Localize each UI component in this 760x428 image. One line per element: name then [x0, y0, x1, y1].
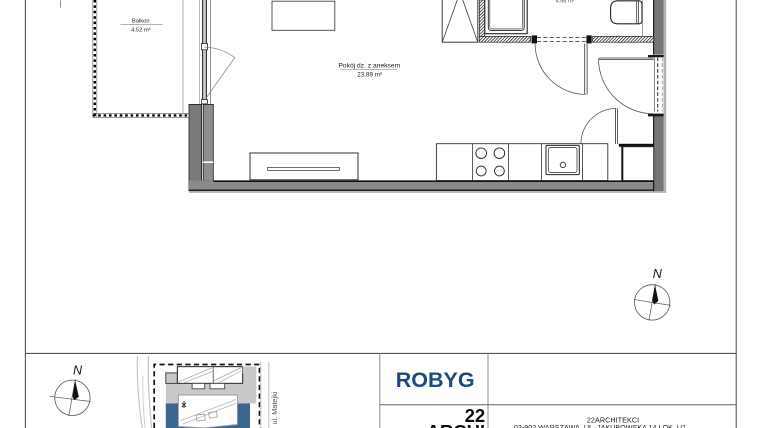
svg-text:ROBYG: ROBYG	[396, 368, 475, 392]
svg-text:Balkon: Balkon	[132, 18, 150, 24]
svg-text:N: N	[653, 267, 663, 281]
svg-text:ARCHI: ARCHI	[427, 421, 486, 428]
svg-text:03-902 WARSZAWA, UL. JAKUBOWSK: 03-902 WARSZAWA, UL. JAKUBOWSKA 14 LOK. …	[514, 423, 686, 428]
svg-text:4.52 m²: 4.52 m²	[131, 28, 151, 34]
svg-text:ul. Matejki: ul. Matejki	[270, 391, 279, 424]
svg-text:Pokój dz. z aneksem: Pokój dz. z aneksem	[338, 62, 400, 69]
svg-text:23.89 m²: 23.89 m²	[357, 71, 382, 78]
svg-text:4.56 m²: 4.56 m²	[556, 0, 575, 4]
svg-text:N: N	[73, 364, 83, 378]
